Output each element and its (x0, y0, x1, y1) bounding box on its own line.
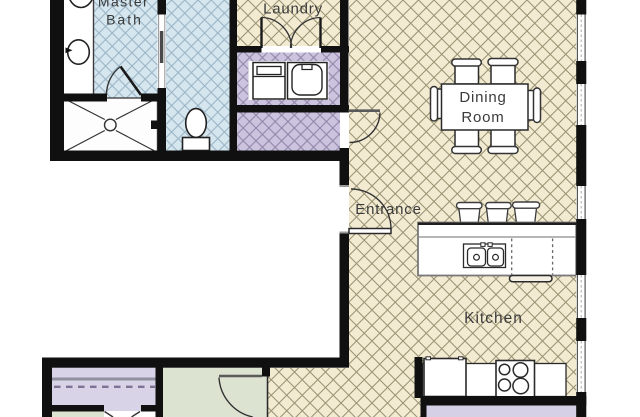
svg-text:Room: Room (461, 109, 504, 126)
svg-text:Laundry: Laundry (263, 0, 323, 17)
svg-text:Kitchen: Kitchen (464, 310, 523, 327)
svg-text:Bath: Bath (106, 12, 143, 28)
svg-text:Entrance: Entrance (355, 201, 421, 218)
svg-text:Dining: Dining (459, 89, 506, 106)
svg-text:Master: Master (98, 0, 149, 10)
